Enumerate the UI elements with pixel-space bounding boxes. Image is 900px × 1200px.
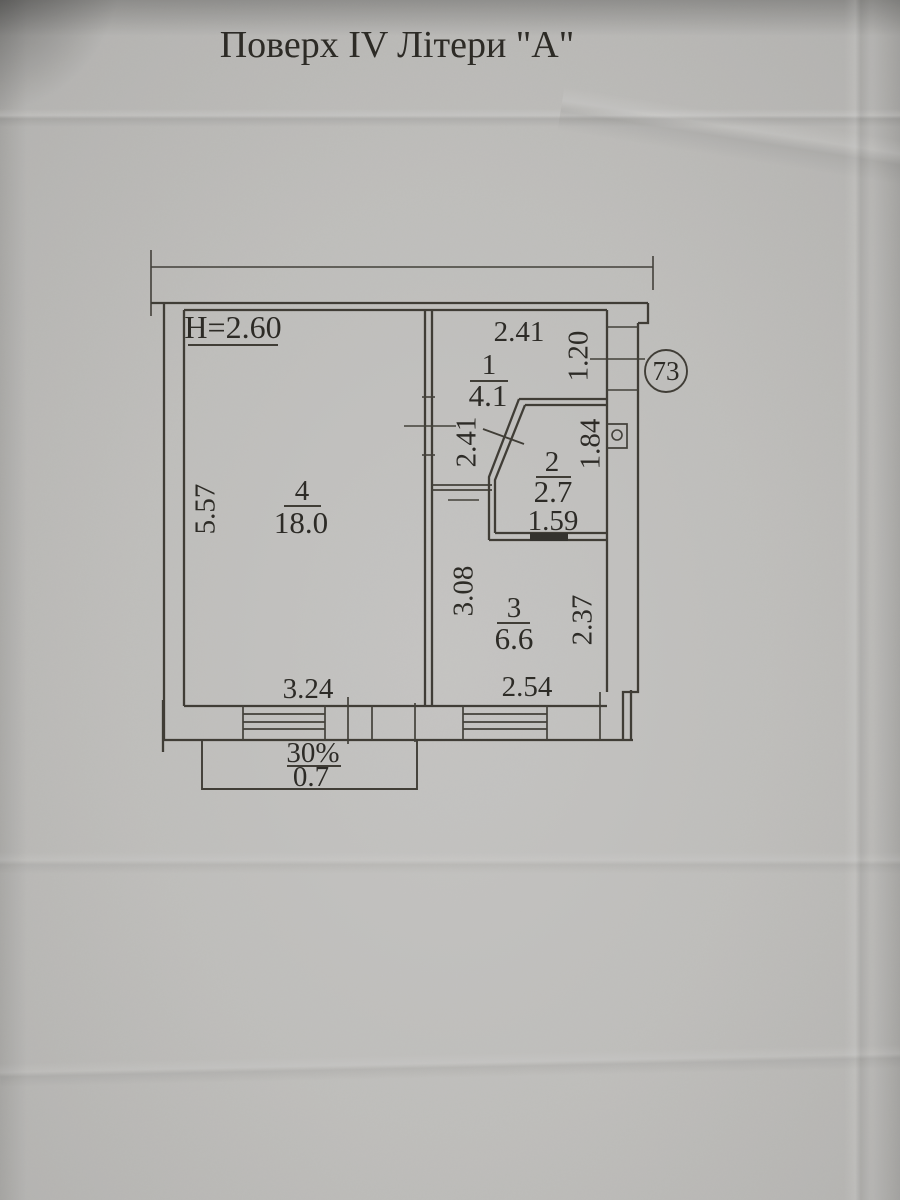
- photo-of-floor-plan: { "title": "Поверх IV Літери \"А\"", "pl…: [0, 0, 900, 1200]
- paper-grain-overlay: [0, 0, 900, 1200]
